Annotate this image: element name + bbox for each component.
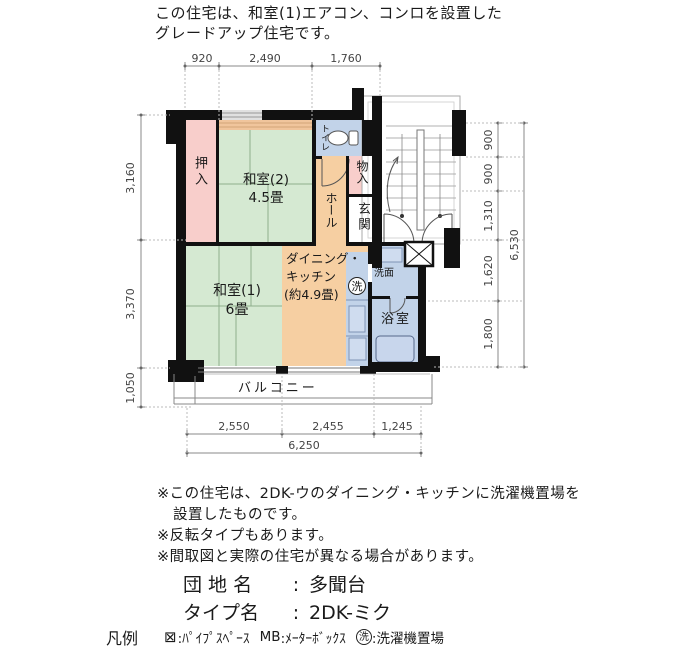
legend-title: 凡例 — [106, 625, 138, 649]
estate-value: 多聞台 — [309, 574, 366, 596]
dim-left-3: 1,050 — [124, 372, 137, 404]
pipe-space-symbol — [405, 242, 433, 266]
label-balcony: バルコニー — [238, 377, 318, 396]
label-washitsu1-size: 6畳 — [192, 299, 282, 319]
dim-bottom-2: 2,455 — [312, 420, 344, 433]
top-window — [222, 110, 262, 120]
legend-pipe-space: ⊠ :ﾊﾟｲﾌﾟｽﾍﾟｰｽ — [164, 627, 250, 647]
label-washitsu2-name: 和室(2) — [224, 168, 308, 188]
type-separator: : — [283, 599, 309, 627]
label-hall: ホール — [323, 192, 340, 228]
estate-row: 団 地 名:多聞台 — [183, 571, 391, 599]
estate-label: 団 地 名 — [183, 571, 283, 599]
stair-stringer — [417, 130, 424, 230]
unit-info: 団 地 名:多聞台 タイプ名:2DK-ミク — [183, 571, 391, 627]
dim-bottom-3: 1,245 — [381, 420, 413, 433]
label-washitsu2-size: 4.5畳 — [224, 186, 308, 206]
dim-top-1: 920 — [192, 52, 213, 65]
floorplan-page: この住宅は、和室(1)エアコン、コンロを設置した グレードアップ住宅です。 — [0, 0, 700, 650]
pipe-space-icon: ⊠ — [164, 628, 177, 646]
toilet-bowl — [328, 131, 348, 145]
dim-bottom-1: 2,550 — [218, 420, 250, 433]
label-toilet: トイレ — [318, 124, 331, 151]
meter-box-key: MB — [260, 629, 281, 645]
label-oshiire: 押入 — [190, 156, 209, 188]
label-dk-line2: キッチン — [286, 266, 336, 285]
dim-right-2: 900 — [482, 164, 495, 185]
legend: 凡例 ⊠ :ﾊﾟｲﾌﾟｽﾍﾟｰｽ MB :ﾒｰﾀｰﾎﾞｯｸｽ 洗 :洗濯機置場 — [106, 625, 454, 649]
dim-top: 920 2,490 1,760 — [184, 52, 382, 120]
label-dk-line3: (約4.9畳) — [284, 284, 339, 303]
dim-right-5: 1,800 — [482, 318, 495, 350]
dim-bottom-total: 6,250 — [288, 439, 320, 452]
dim-right-3: 1,310 — [482, 200, 495, 232]
dim-right-total: 6,530 — [508, 229, 521, 261]
toilet-tank — [349, 131, 358, 145]
type-label: タイプ名 — [183, 599, 283, 627]
type-row: タイプ名:2DK-ミク — [183, 599, 391, 627]
label-dk-line1: ダイニング・ — [286, 248, 361, 267]
note-line1: ※この住宅は、2DK-ウのダイニング・キッチンに洗濯機置場を — [157, 484, 580, 505]
pipe-space-label: :ﾊﾟｲﾌﾟｽﾍﾟｰｽ — [178, 627, 250, 647]
kitchen-fixtures — [346, 300, 368, 360]
bathtub — [376, 336, 414, 362]
dim-right-1: 900 — [482, 130, 495, 151]
washer-place-icon: 洗 — [356, 629, 372, 645]
dim-top-3: 1,760 — [330, 52, 362, 65]
meter-box-label: :ﾒｰﾀｰﾎﾞｯｸｽ — [281, 627, 346, 647]
type-value: 2DK-ミク — [309, 602, 391, 624]
label-bath: 浴室 — [381, 308, 411, 327]
dim-top-2: 2,490 — [249, 52, 281, 65]
header-line1: この住宅は、和室(1)エアコン、コンロを設置した — [155, 3, 502, 23]
label-mono-ire: 物入 — [354, 160, 371, 184]
label-senmen: 洗面 — [374, 264, 394, 279]
legend-washer-place: 洗 :洗濯機置場 — [356, 627, 444, 647]
washer-place-label: :洗濯機置場 — [372, 627, 444, 647]
header-line2: グレードアップ住宅です。 — [155, 23, 502, 43]
washitsu2-top-strip — [219, 120, 312, 130]
dim-right-4: 1,620 — [482, 255, 495, 287]
dim-left-2: 3,370 — [124, 288, 137, 320]
note-line3: ※反転タイプもあります。 — [157, 526, 580, 547]
header-note: この住宅は、和室(1)エアコン、コンロを設置した グレードアップ住宅です。 — [155, 3, 502, 43]
label-washitsu1-name: 和室(1) — [192, 280, 282, 300]
dim-left-1: 3,160 — [124, 162, 137, 194]
estate-separator: : — [283, 571, 309, 599]
label-genkan: 玄関 — [354, 202, 373, 233]
washer-place-symbol: 洗 — [348, 277, 366, 295]
note-line2: 設置したものです。 — [157, 505, 580, 526]
notes: ※この住宅は、2DK-ウのダイニング・キッチンに洗濯機置場を 設置したものです。… — [157, 484, 580, 568]
note-line4: ※間取図と実際の住宅が異なる場合があります。 — [157, 547, 580, 568]
legend-meter-box: MB :ﾒｰﾀｰﾎﾞｯｸｽ — [260, 627, 346, 647]
